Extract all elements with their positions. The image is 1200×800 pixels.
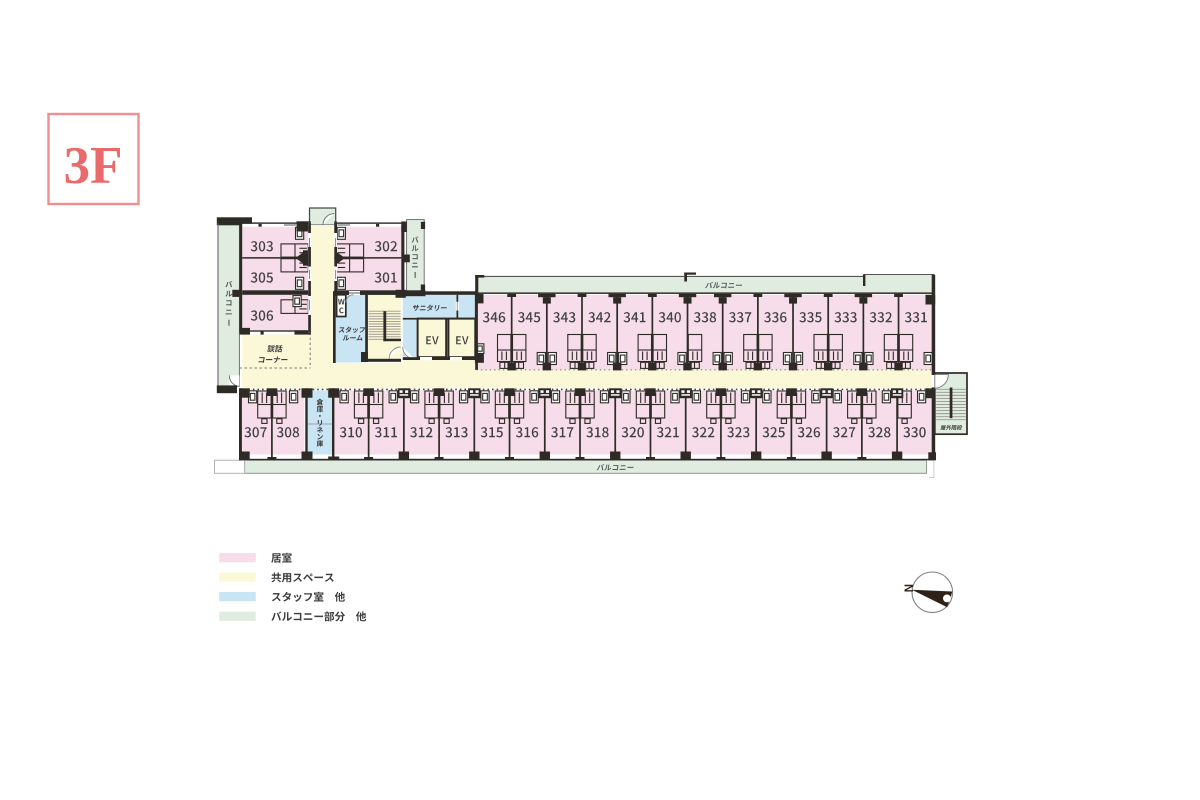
svg-text:N: N <box>902 584 914 592</box>
svg-text:3F: 3F <box>64 137 123 195</box>
